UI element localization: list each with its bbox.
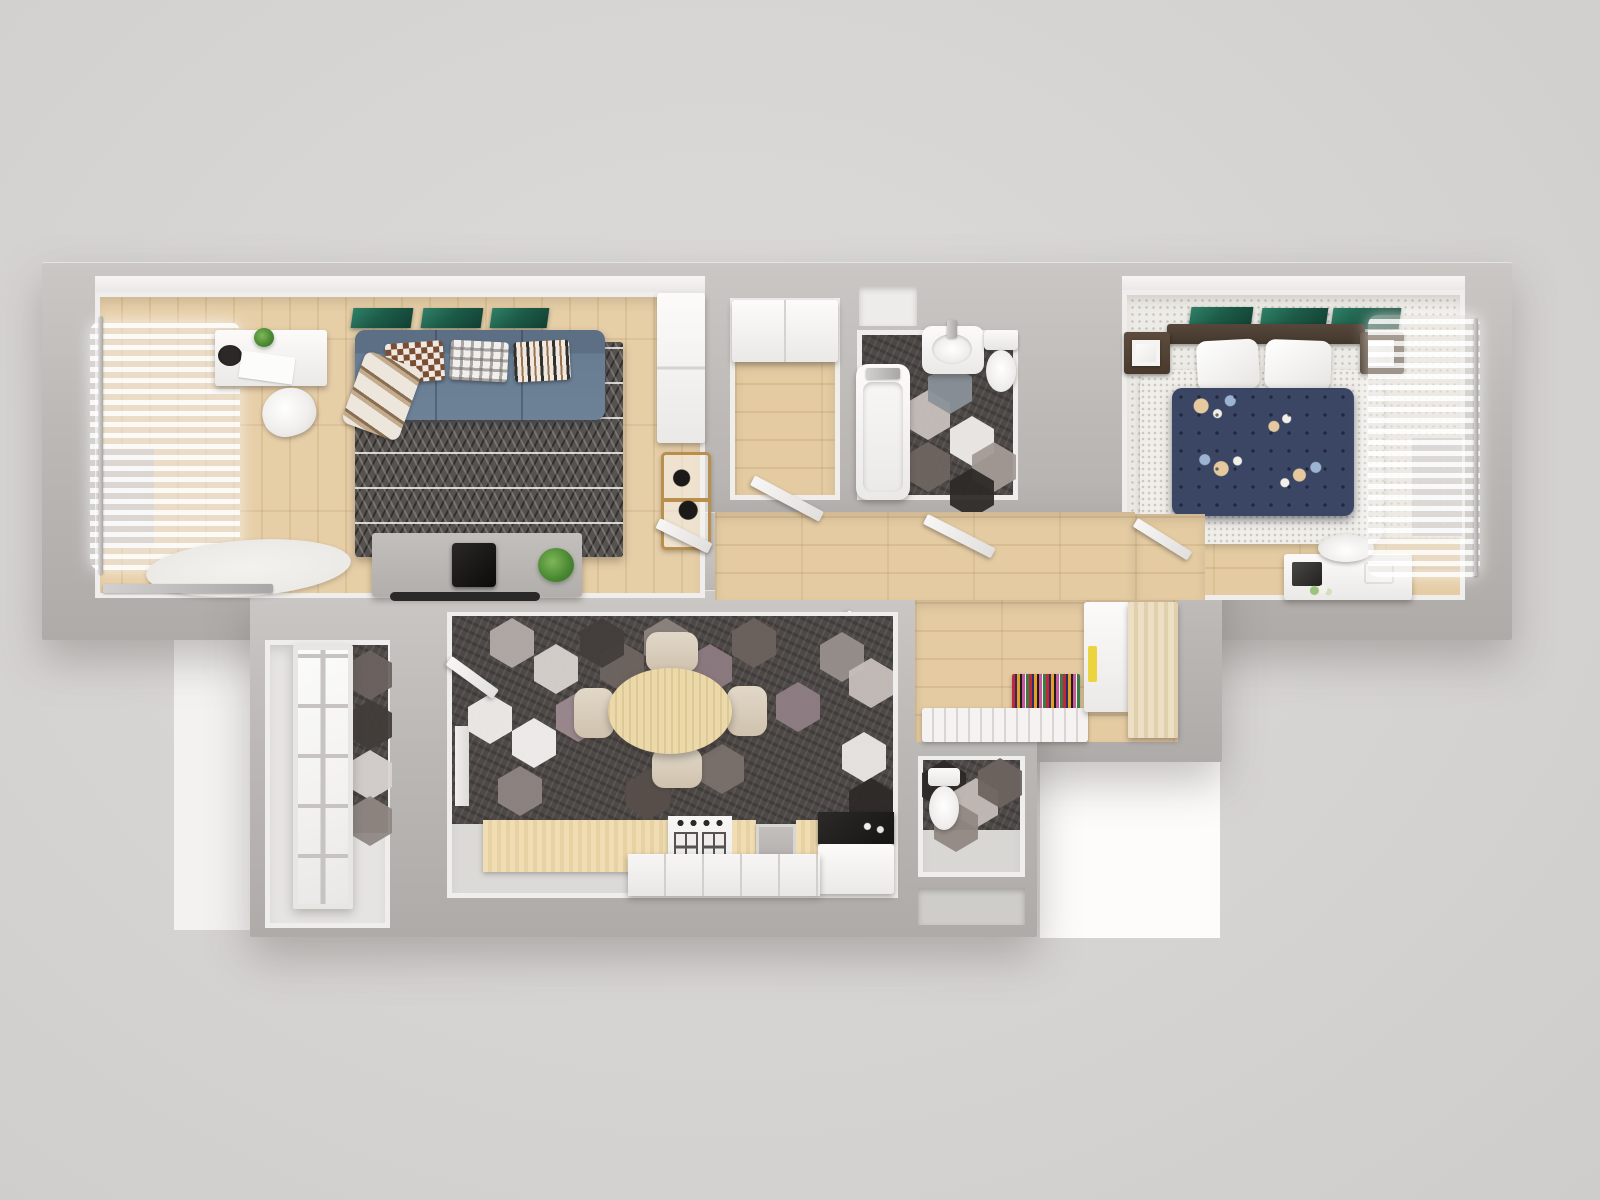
living-wall-art-3	[490, 308, 550, 328]
bed-headboard	[1167, 324, 1365, 344]
bedroom-curtain-rod	[1474, 318, 1478, 576]
bed-pillow-right	[1264, 339, 1332, 391]
vanity-chair	[1318, 534, 1374, 562]
black-countertop	[818, 812, 894, 844]
hall-wood-wardrobe	[1128, 602, 1178, 738]
balcony-glass-door	[293, 645, 353, 909]
dining-chair-top	[646, 632, 698, 672]
washbasin-bowl	[932, 334, 972, 364]
kitchen-balcony-door-frame	[455, 726, 469, 806]
bedroom-window-curtain	[1368, 315, 1480, 577]
closet-wood-floor	[735, 360, 835, 495]
exterior-patch-right	[1040, 760, 1220, 938]
wc-toilet-bowl	[929, 786, 959, 830]
floor-plan-canvas	[0, 0, 1600, 1200]
living-wall-art-1	[351, 308, 414, 328]
sofa-pillow-plaid	[449, 340, 509, 383]
bathroom-toilet-bowl	[986, 350, 1016, 392]
wall-rail-radiator	[103, 584, 273, 593]
dining-table	[608, 668, 732, 754]
vanity-photo-frame	[1292, 562, 1322, 586]
bathroom-toilet-tank	[984, 330, 1018, 350]
living-tall-cabinet	[657, 293, 705, 443]
dining-chair-bottom	[652, 748, 702, 788]
bathtub-faucet	[866, 368, 900, 379]
runner-rug	[1012, 674, 1080, 712]
kitchen-island-cabinets	[628, 854, 820, 896]
bed-duvet-dots	[1172, 388, 1354, 516]
vanity-flowers	[1306, 584, 1334, 597]
living-wall-art-2	[421, 308, 484, 328]
bathtub-basin	[863, 382, 903, 492]
exterior-patch-left	[174, 634, 250, 930]
soundbar	[390, 592, 540, 601]
bed-pillow-left	[1196, 338, 1261, 391]
kitchen-cabinet-white	[818, 844, 894, 894]
dining-chair-right	[727, 686, 767, 736]
desk-bowl	[218, 345, 242, 366]
shoe-bench	[922, 708, 1088, 742]
sofa-pillow-striped	[513, 340, 571, 383]
tv-screen	[452, 543, 496, 587]
desk-plant	[254, 328, 274, 347]
washbasin-faucet	[947, 320, 957, 338]
storage-niche-floor	[918, 888, 1025, 925]
wc-toilet-tank	[928, 768, 960, 786]
wardrobe-yellow-handle	[1088, 646, 1097, 682]
living-curtain-rod	[99, 316, 103, 574]
nightstand-left-lamp	[1132, 340, 1160, 366]
closet-cabinet	[732, 300, 838, 362]
bath-niche	[859, 286, 917, 326]
cooktop-knobs	[674, 820, 726, 826]
tv-stand-plant	[538, 548, 574, 582]
